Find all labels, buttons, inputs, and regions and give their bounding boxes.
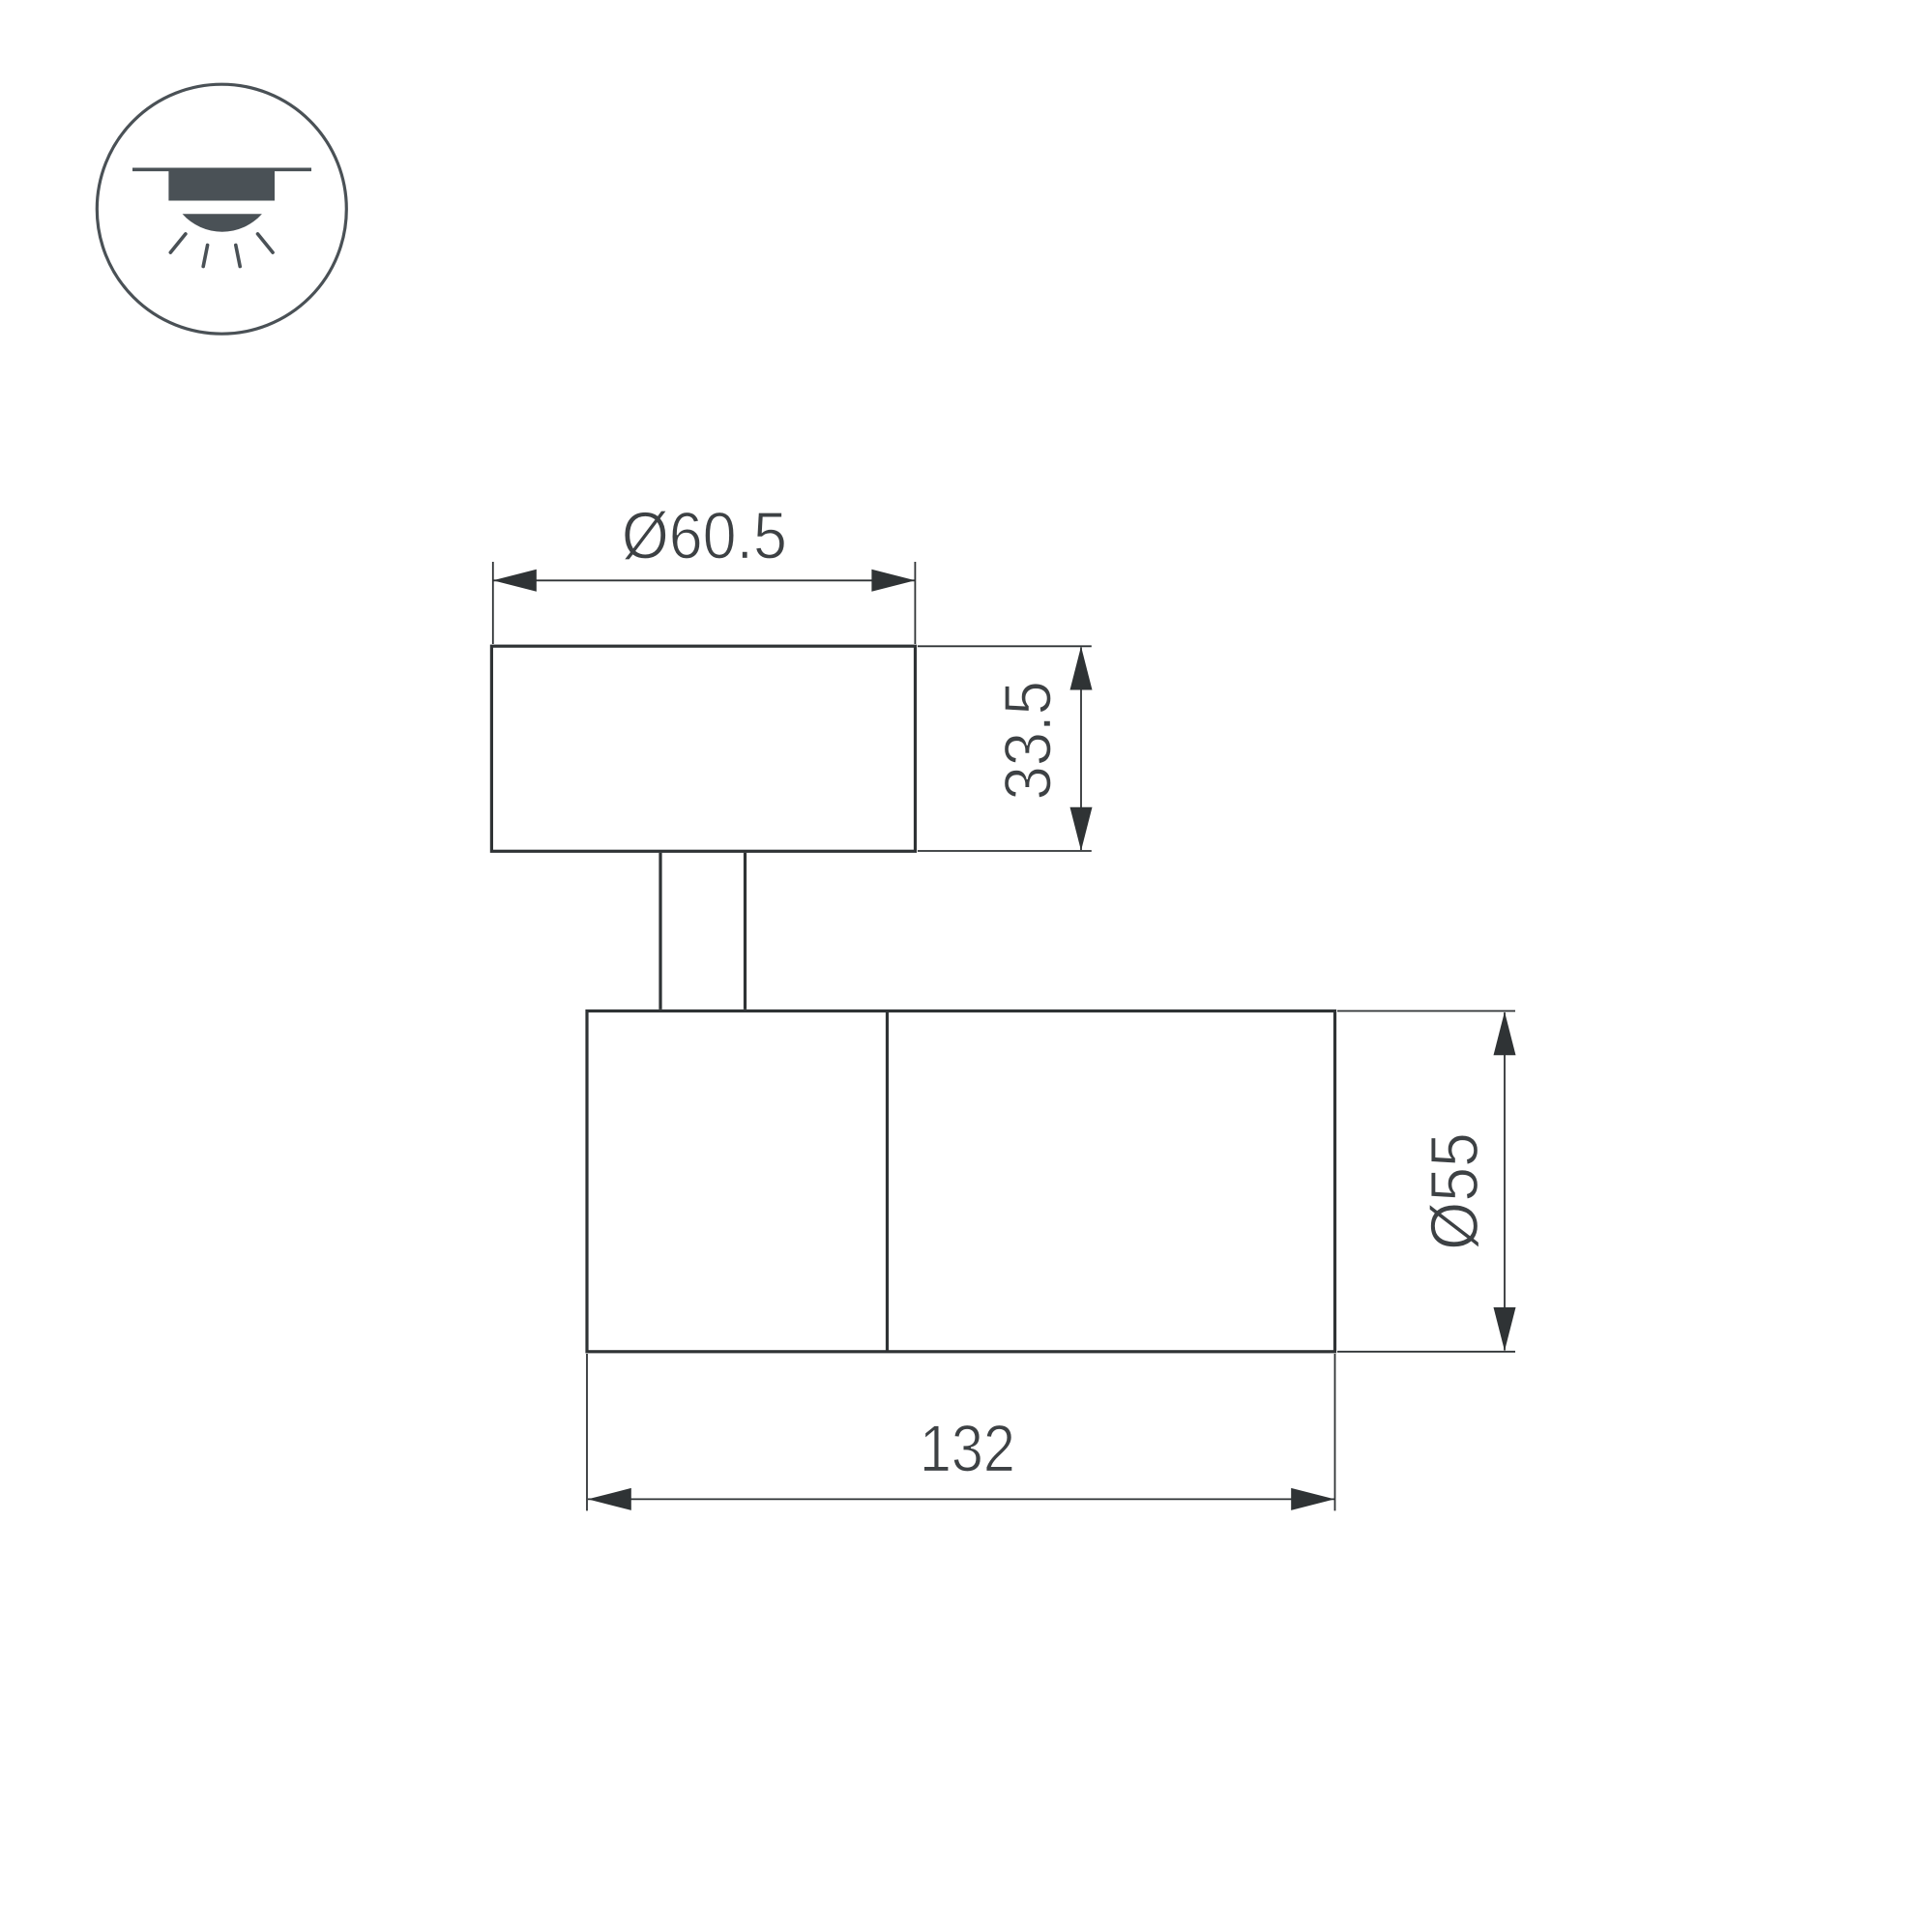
svg-text:Ø55: Ø55 (1417, 1132, 1492, 1250)
svg-text:Ø60.5: Ø60.5 (622, 498, 787, 572)
svg-text:132: 132 (920, 1411, 1015, 1485)
svg-text:33.5: 33.5 (991, 681, 1066, 801)
